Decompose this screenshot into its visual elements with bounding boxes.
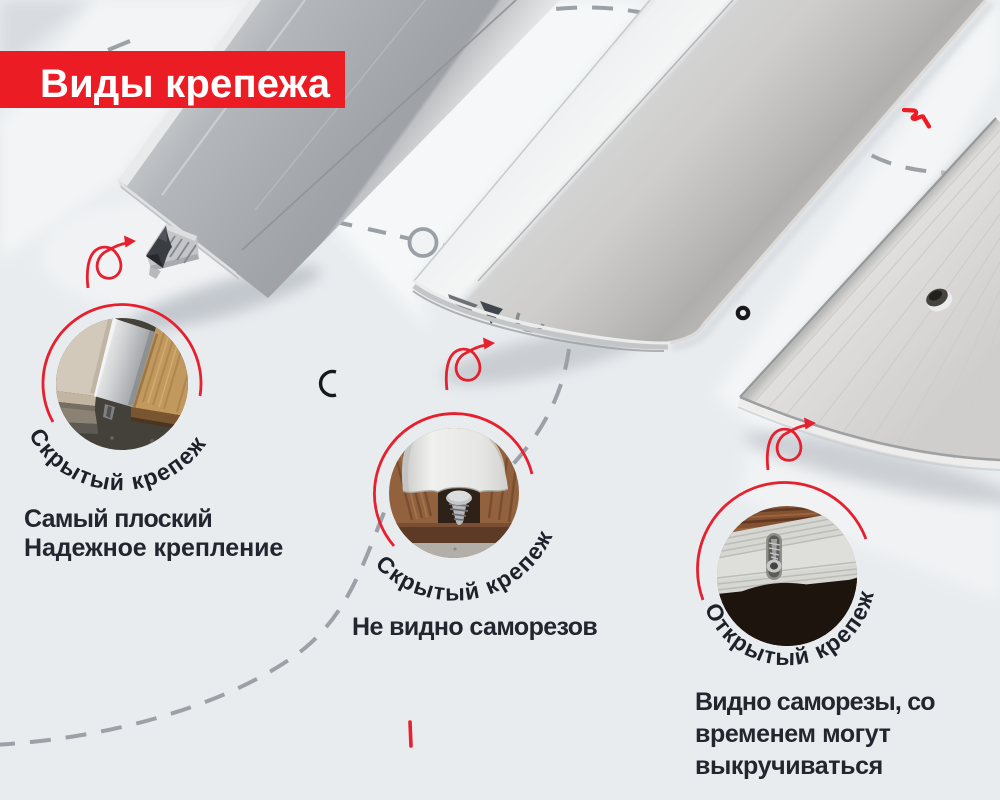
svg-text:Надежное крепление: Надежное крепление <box>24 534 283 562</box>
svg-text:Самый плоский: Самый плоский <box>24 505 212 533</box>
svg-text:Виды крепежа: Виды крепежа <box>40 62 331 106</box>
svg-text:Видно саморезы, со: Видно саморезы, со <box>695 688 935 716</box>
svg-text:Не видно саморезов: Не видно саморезов <box>352 613 597 641</box>
svg-text:временем могут: временем могут <box>695 720 891 748</box>
svg-text:выкручиваться: выкручиваться <box>695 752 883 780</box>
